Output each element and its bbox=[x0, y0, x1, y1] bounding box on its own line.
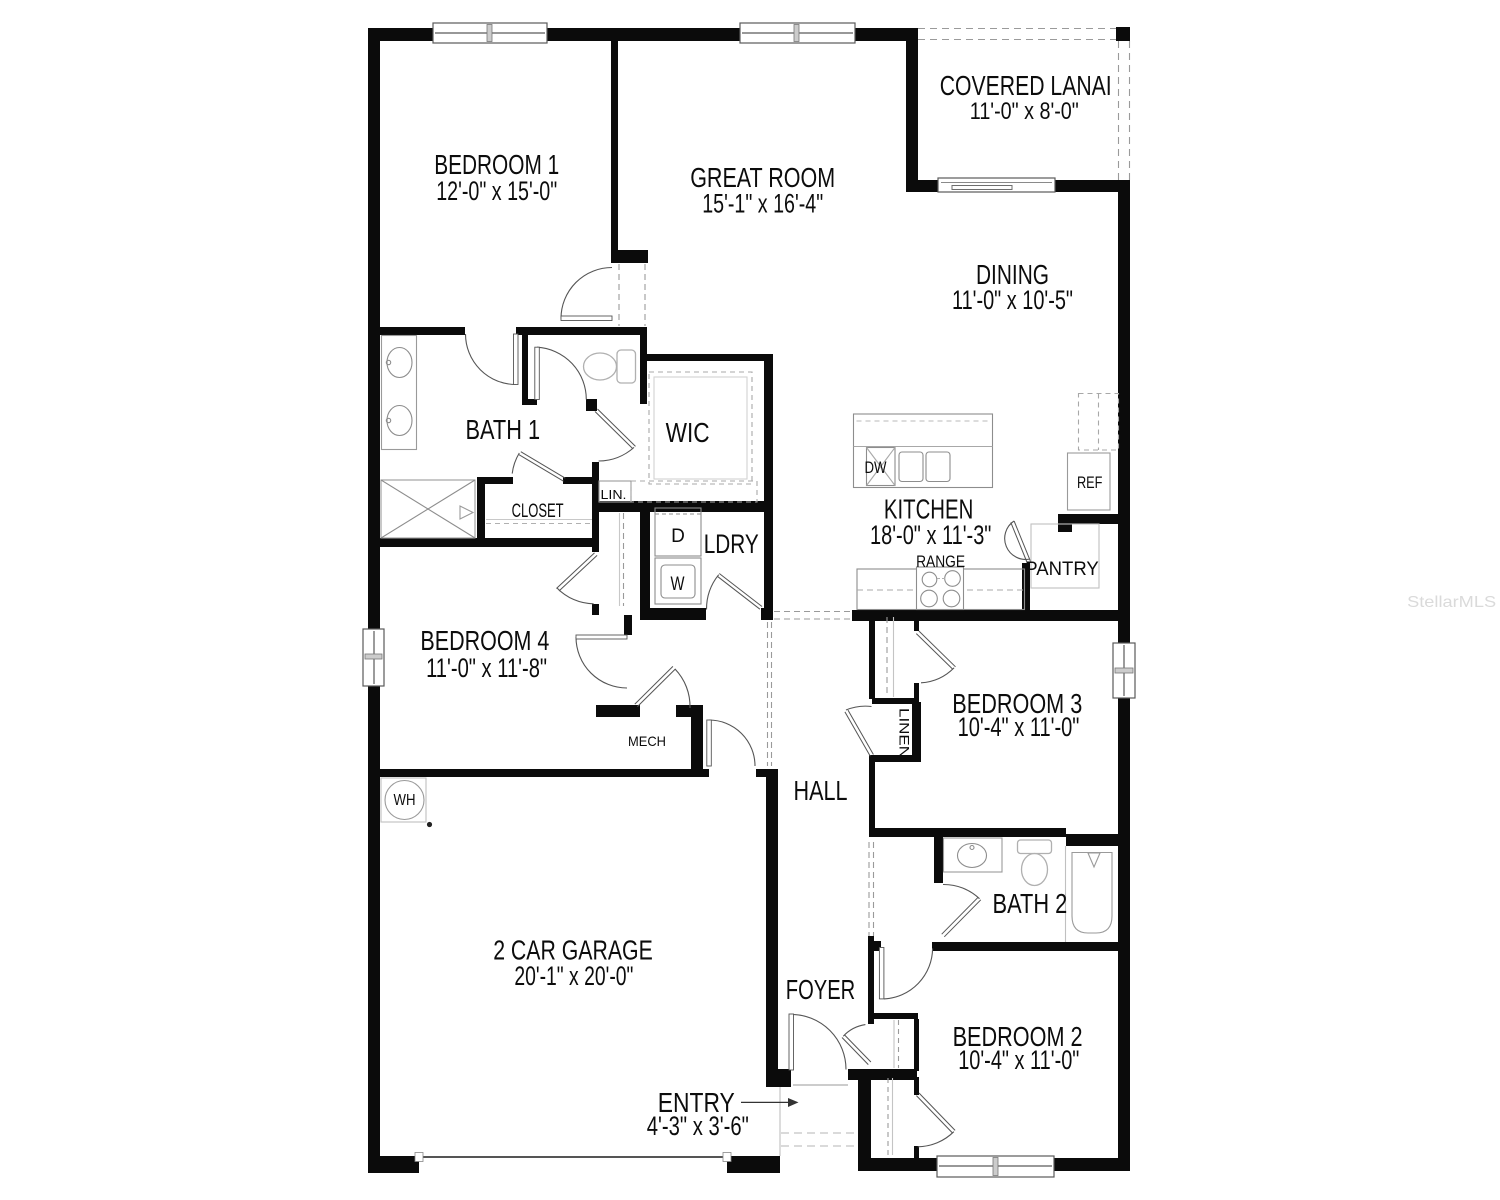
svg-text:10'-4" x 11'-0": 10'-4" x 11'-0" bbox=[958, 1045, 1079, 1075]
svg-text:FOYER: FOYER bbox=[786, 974, 856, 1005]
svg-text:20'-1" x 20'-0": 20'-1" x 20'-0" bbox=[514, 961, 633, 991]
svg-text:LIN.: LIN. bbox=[601, 487, 627, 502]
svg-text:MECH: MECH bbox=[628, 733, 666, 749]
svg-text:11'-0" x 11'-8": 11'-0" x 11'-8" bbox=[426, 653, 547, 683]
svg-text:4'-3" x 3'-6": 4'-3" x 3'-6" bbox=[647, 1111, 749, 1141]
svg-text:D: D bbox=[671, 526, 685, 547]
svg-text:LINEN: LINEN bbox=[896, 708, 912, 758]
svg-text:PANTRY: PANTRY bbox=[1025, 558, 1099, 580]
svg-text:BEDROOM 4: BEDROOM 4 bbox=[420, 625, 549, 656]
svg-text:18'-0" x 11'-3": 18'-0" x 11'-3" bbox=[870, 520, 991, 550]
svg-text:COVERED LANAI: COVERED LANAI bbox=[940, 70, 1112, 101]
svg-text:REF: REF bbox=[1077, 473, 1103, 492]
svg-text:StellarMLS: StellarMLS bbox=[1407, 594, 1496, 611]
svg-text:11'-0" x 10'-5": 11'-0" x 10'-5" bbox=[952, 285, 1073, 315]
svg-text:WIC: WIC bbox=[666, 417, 710, 448]
svg-text:BATH 1: BATH 1 bbox=[466, 414, 541, 445]
svg-text:LDRY: LDRY bbox=[704, 529, 759, 559]
svg-text:11'-0" x 8'-0": 11'-0" x 8'-0" bbox=[970, 98, 1079, 125]
svg-text:DW: DW bbox=[865, 458, 887, 477]
svg-text:10'-4" x 11'-0": 10'-4" x 11'-0" bbox=[958, 712, 1080, 742]
svg-text:WH: WH bbox=[394, 792, 416, 809]
svg-text:W: W bbox=[671, 574, 685, 595]
svg-text:12'-0" x 15'-0": 12'-0" x 15'-0" bbox=[436, 176, 557, 206]
svg-text:15'-1" x 16'-4": 15'-1" x 16'-4" bbox=[702, 189, 823, 219]
svg-text:BATH 2: BATH 2 bbox=[993, 888, 1068, 919]
svg-text:CLOSET: CLOSET bbox=[512, 501, 564, 522]
svg-text:HALL: HALL bbox=[794, 775, 848, 806]
svg-text:RANGE: RANGE bbox=[916, 552, 965, 571]
